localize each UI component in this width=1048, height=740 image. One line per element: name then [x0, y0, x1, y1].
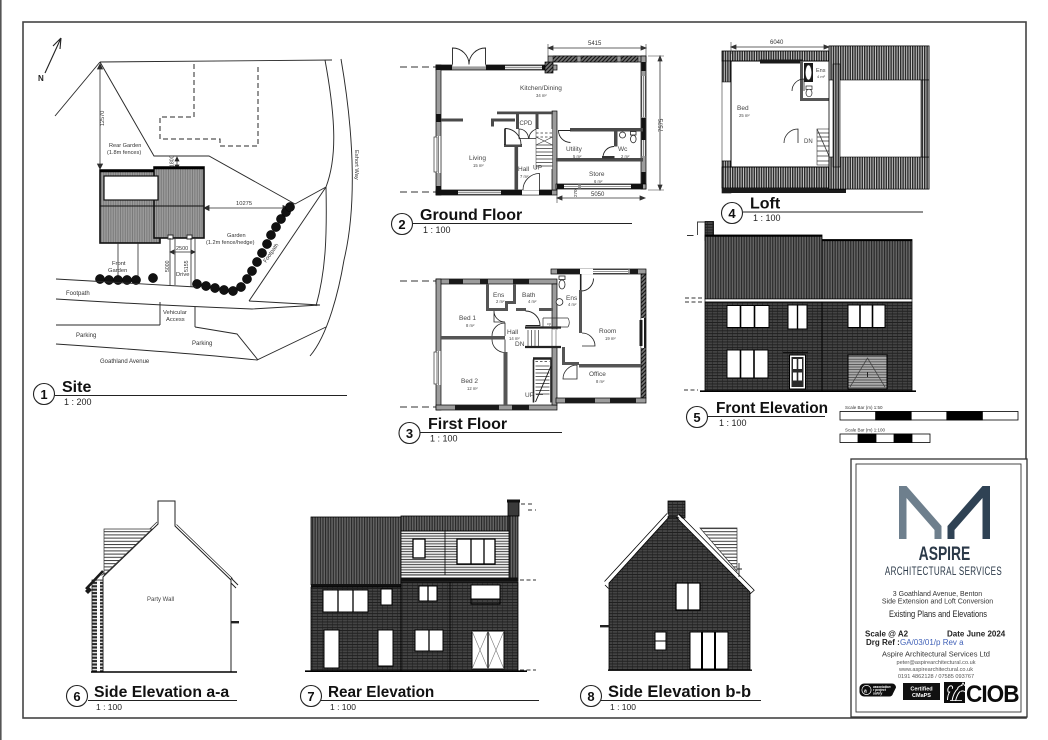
- svg-text:Store: Store: [589, 171, 605, 178]
- svg-text:Front Elevation: Front Elevation: [716, 400, 828, 417]
- svg-text:1 : 100: 1 : 100: [423, 225, 451, 235]
- svg-text:Goathland Avenue: Goathland Avenue: [100, 359, 150, 365]
- svg-text:Side Extension and Loft Conver: Side Extension and Loft Conversion: [882, 599, 993, 606]
- svg-text:5 m²: 5 m²: [573, 154, 582, 159]
- svg-text:Ens: Ens: [493, 292, 505, 299]
- svg-text:GA/03/01/p Rev a: GA/03/01/p Rev a: [900, 638, 964, 647]
- svg-text:Aspire Architectural Services: Aspire Architectural Services Ltd: [882, 650, 990, 659]
- svg-text:4: 4: [728, 206, 736, 221]
- svg-text:Bed 2: Bed 2: [461, 378, 478, 385]
- svg-text:1 : 100: 1 : 100: [96, 702, 122, 712]
- svg-text:www.aspirearchitectural.co.uk: www.aspirearchitectural.co.uk: [898, 667, 973, 673]
- svg-text:Vehicular: Vehicular: [163, 310, 187, 316]
- svg-text:N: N: [38, 74, 44, 83]
- svg-text:8 m²: 8 m²: [466, 323, 475, 328]
- svg-text:Hall: Hall: [518, 166, 530, 173]
- svg-text:270: 270: [573, 189, 578, 197]
- svg-text:8 m²: 8 m²: [596, 379, 605, 384]
- svg-text:Office: Office: [589, 371, 606, 378]
- svg-text:2 m²: 2 m²: [621, 154, 630, 159]
- svg-text:5050: 5050: [591, 192, 605, 198]
- svg-text:Side Elevation a-a: Side Elevation a-a: [94, 684, 229, 701]
- svg-text:CMaPS: CMaPS: [912, 693, 931, 699]
- svg-text:Scale Bar (m) 1:50: Scale Bar (m) 1:50: [845, 405, 883, 410]
- svg-text:CIOB: CIOB: [966, 680, 1019, 707]
- svg-text:cpl: cpl: [547, 321, 552, 326]
- svg-text:First Floor: First Floor: [428, 416, 507, 433]
- svg-text:(1.8m fences): (1.8m fences): [107, 150, 141, 156]
- svg-text:Scale Bar (m) 1:100: Scale Bar (m) 1:100: [845, 428, 886, 433]
- svg-text:Access: Access: [166, 317, 185, 323]
- svg-text:Kitchen/Dining: Kitchen/Dining: [520, 85, 562, 92]
- svg-text:Side Elevation b-b: Side Elevation b-b: [608, 683, 751, 701]
- svg-text:DN: DN: [804, 139, 813, 145]
- svg-text:Drive: Drive: [176, 272, 190, 278]
- svg-text:safety: safety: [873, 692, 882, 696]
- svg-text:ASPIRE: ASPIRE: [919, 543, 971, 565]
- svg-text:12 m²: 12 m²: [467, 386, 478, 391]
- svg-text:Loft: Loft: [750, 196, 781, 213]
- svg-text:Bed 1: Bed 1: [459, 315, 476, 322]
- svg-text:Bed: Bed: [737, 105, 749, 112]
- svg-text:UP: UP: [525, 392, 534, 399]
- svg-text:Garden: Garden: [108, 268, 127, 274]
- svg-text:2: 2: [398, 217, 405, 232]
- svg-text:6: 6: [73, 689, 80, 704]
- svg-text:1 : 200: 1 : 200: [64, 397, 92, 407]
- svg-text:7575: 7575: [659, 118, 665, 132]
- svg-text:ARCHITECTURAL SERVICES: ARCHITECTURAL SERVICES: [885, 566, 1002, 579]
- svg-text:peter@aspirearchitectural.co.u: peter@aspirearchitectural.co.uk: [896, 660, 975, 666]
- svg-text:25 m²: 25 m²: [739, 113, 750, 118]
- svg-text:10275: 10275: [236, 201, 252, 207]
- svg-text:3: 3: [406, 426, 413, 441]
- svg-text:Bath: Bath: [522, 292, 536, 299]
- svg-text:Rear Elevation: Rear Elevation: [328, 684, 434, 701]
- svg-text:Wc: Wc: [618, 146, 628, 153]
- svg-text:5: 5: [693, 410, 700, 425]
- svg-text:Room: Room: [599, 328, 616, 335]
- svg-text:15 m²: 15 m²: [473, 163, 484, 168]
- svg-text:4 m²: 4 m²: [568, 302, 577, 307]
- svg-text:Eshort Way: Eshort Way: [353, 150, 359, 180]
- svg-text:6040: 6040: [770, 40, 784, 46]
- svg-text:4 m²: 4 m²: [528, 299, 537, 304]
- svg-text:2500: 2500: [176, 246, 188, 252]
- svg-text:Drg Ref :: Drg Ref :: [866, 638, 900, 647]
- svg-text:5415: 5415: [588, 41, 602, 47]
- svg-text:7: 7: [307, 689, 314, 704]
- svg-text:CPD: CPD: [520, 121, 533, 127]
- svg-text:3 Goathland Avenue, Benton: 3 Goathland Avenue, Benton: [893, 591, 982, 598]
- svg-text:5000: 5000: [165, 260, 171, 272]
- svg-text:Garden: Garden: [227, 233, 246, 239]
- svg-text:Rear Garden: Rear Garden: [109, 143, 141, 149]
- svg-text:1 : 100: 1 : 100: [330, 702, 356, 712]
- svg-text:(1.2m fence/hedge): (1.2m fence/hedge): [206, 240, 255, 246]
- svg-text:Utility: Utility: [566, 146, 583, 153]
- svg-text:8: 8: [587, 689, 594, 704]
- svg-text:Living: Living: [469, 155, 486, 162]
- svg-text:Parking: Parking: [76, 333, 96, 339]
- svg-text:Footpath: Footpath: [66, 291, 90, 297]
- svg-text:1 : 100: 1 : 100: [430, 434, 458, 444]
- svg-text:Site: Site: [62, 379, 91, 396]
- svg-text:1800: 1800: [170, 155, 176, 167]
- svg-text:1: 1: [40, 387, 47, 402]
- svg-text:0191 4862128 / 07585 093767: 0191 4862128 / 07585 093767: [898, 674, 974, 680]
- svg-text:1 : 100: 1 : 100: [719, 418, 747, 428]
- svg-text:a: a: [864, 689, 867, 695]
- svg-text:Parking: Parking: [192, 341, 212, 347]
- svg-text:19 m²: 19 m²: [605, 336, 616, 341]
- svg-text:12570: 12570: [100, 111, 106, 126]
- svg-text:DN: DN: [515, 341, 525, 348]
- svg-text:1 : 100: 1 : 100: [753, 213, 781, 223]
- svg-text:6 m²: 6 m²: [594, 179, 603, 184]
- svg-text:Ens: Ens: [566, 295, 578, 302]
- svg-text:Certified: Certified: [910, 687, 932, 693]
- svg-text:Existing Plans and Elevations: Existing Plans and Elevations: [889, 609, 987, 619]
- svg-text:4 m²: 4 m²: [817, 74, 826, 79]
- svg-text:2 m²: 2 m²: [496, 299, 505, 304]
- svg-text:34 m²: 34 m²: [536, 93, 547, 98]
- svg-text:1 : 100: 1 : 100: [610, 702, 636, 712]
- svg-text:Party Wall: Party Wall: [147, 597, 174, 603]
- svg-text:Hall: Hall: [507, 329, 519, 336]
- svg-text:7 m²: 7 m²: [520, 174, 529, 179]
- svg-text:UP: UP: [533, 165, 542, 172]
- svg-text:5155: 5155: [184, 260, 190, 272]
- svg-text:Front: Front: [112, 261, 126, 267]
- svg-text:Ground Floor: Ground Floor: [420, 207, 522, 224]
